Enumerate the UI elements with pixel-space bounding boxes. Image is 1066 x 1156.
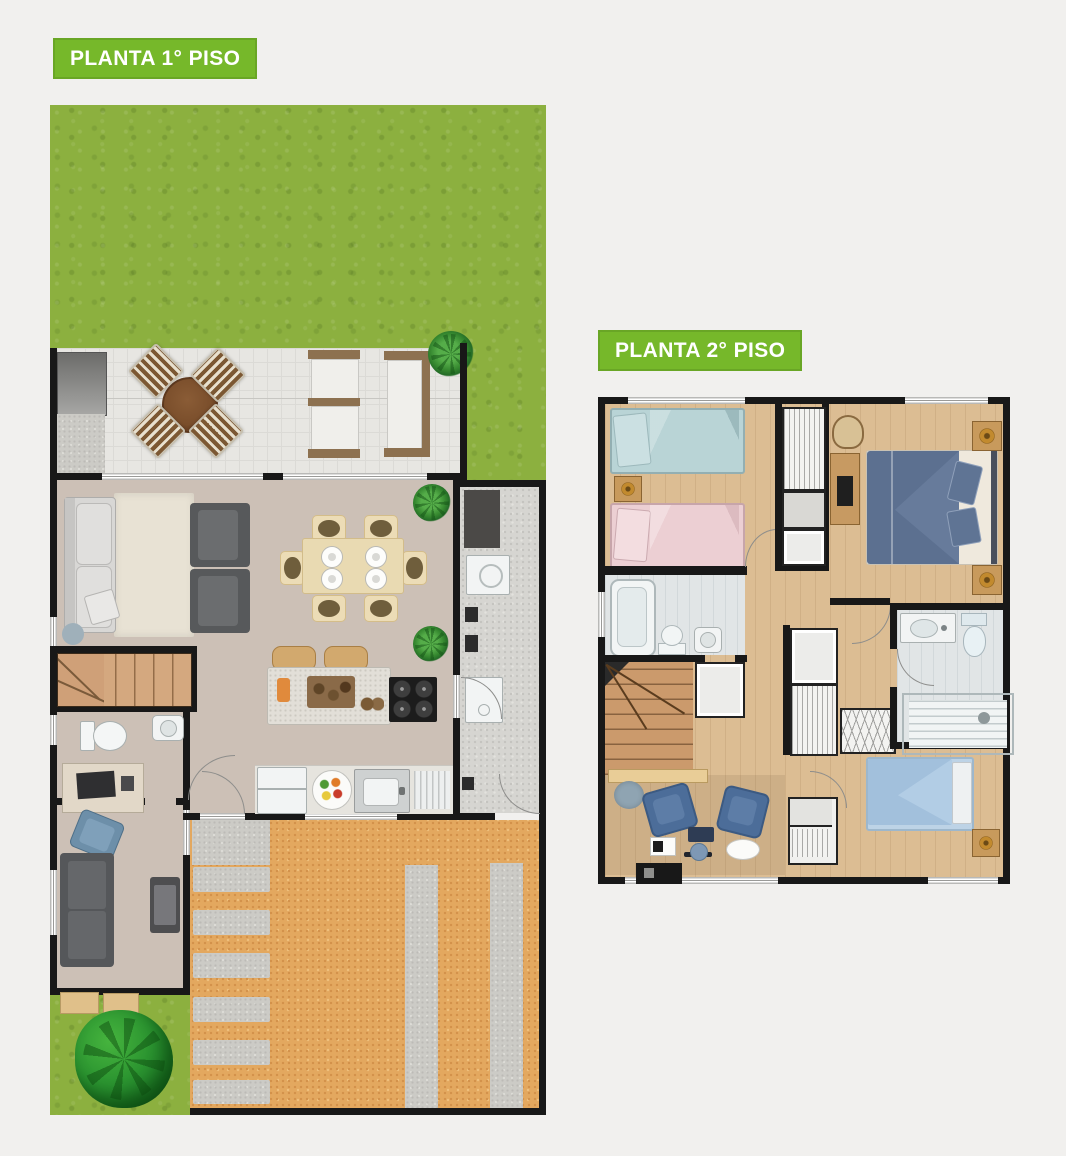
kitchen-window	[305, 813, 397, 820]
wall	[453, 718, 460, 820]
floor1-title-badge: PLANTA 1° PISO	[53, 38, 257, 79]
pillow	[946, 507, 982, 548]
wall	[190, 1108, 539, 1115]
entry-pad	[192, 820, 270, 865]
single-bed-teal	[610, 408, 745, 474]
wall	[783, 625, 790, 755]
desk	[62, 763, 144, 813]
wardrobe	[790, 684, 838, 756]
wardrobe	[840, 708, 896, 754]
pillow	[613, 508, 651, 563]
floor1-plan	[50, 105, 546, 1115]
wall	[735, 655, 747, 662]
shower-drain	[978, 712, 990, 724]
wall	[775, 404, 782, 571]
wall	[427, 473, 460, 480]
dining-table	[302, 538, 404, 594]
single-bed-pink	[610, 503, 745, 569]
stepping-stone	[193, 1080, 270, 1104]
side-grass	[467, 343, 546, 480]
oval-table	[726, 839, 760, 860]
terrace-plant	[428, 331, 474, 377]
wardrobe	[782, 407, 826, 491]
door-opening	[453, 675, 460, 718]
garden-step	[60, 992, 99, 1014]
gravel-strip	[57, 414, 105, 480]
wall	[183, 813, 200, 820]
floor1-title-label: PLANTA 1° PISO	[70, 47, 240, 70]
staircase	[57, 653, 192, 707]
closet-shelf	[790, 628, 838, 685]
bathroom-sink	[152, 715, 184, 741]
stepping-stone	[193, 953, 270, 978]
backyard-grass	[50, 105, 546, 348]
indoor-plant	[413, 484, 451, 522]
stepping-stone	[193, 867, 270, 892]
pillow	[952, 762, 972, 824]
wall	[830, 598, 890, 605]
cutting-board	[307, 676, 355, 708]
sliding-door	[283, 473, 427, 480]
vanity-sink	[900, 613, 956, 643]
outdoor-sofa	[308, 350, 360, 458]
wall	[50, 935, 57, 995]
wall	[598, 397, 605, 884]
window	[905, 397, 988, 404]
window	[50, 715, 57, 745]
round-stool	[684, 843, 712, 865]
wall	[460, 480, 546, 487]
kitchen-island	[267, 667, 391, 725]
window	[928, 877, 998, 884]
garden-bush	[75, 1010, 173, 1108]
fruit-bowl	[312, 770, 352, 810]
wall	[263, 473, 283, 480]
desk-chair	[832, 415, 864, 449]
nightstand	[972, 829, 1000, 857]
wall	[453, 480, 460, 675]
window	[628, 397, 745, 404]
laptop	[837, 476, 853, 506]
wall	[1003, 397, 1010, 884]
wall	[397, 813, 453, 820]
sliding-door	[102, 473, 263, 480]
staircase	[605, 662, 693, 775]
shower	[902, 693, 1014, 755]
pillow	[612, 412, 651, 467]
single-bed-blue	[866, 757, 974, 831]
wall	[605, 655, 705, 662]
driveway-track	[405, 865, 438, 1108]
kitchen-sink	[354, 769, 410, 813]
washing-machine	[466, 555, 510, 595]
hall-closet	[695, 662, 745, 718]
toilet	[960, 613, 987, 657]
entry-door-opening	[200, 813, 245, 820]
media-console	[650, 837, 676, 856]
doormat	[464, 490, 500, 548]
study-sofa	[60, 853, 114, 967]
headboard	[991, 451, 997, 564]
wall	[605, 566, 747, 575]
floor2-title-label: PLANTA 2° PISO	[615, 339, 785, 362]
floor-plans-canvas: PLANTA 1° PISO	[0, 0, 1066, 1156]
nightstand	[972, 565, 1002, 595]
wall	[50, 646, 197, 653]
wall	[890, 603, 897, 649]
toilet	[658, 625, 684, 653]
wall	[245, 813, 305, 820]
dish-rack	[414, 771, 450, 809]
coffee-table	[150, 877, 180, 933]
floor2-title-badge: PLANTA 2° PISO	[598, 330, 802, 371]
wall	[539, 480, 546, 1115]
nightstand	[614, 476, 642, 502]
utility-box	[465, 607, 478, 622]
faucet	[399, 787, 405, 795]
sofa	[64, 497, 116, 633]
refrigerator	[257, 767, 307, 814]
outdoor-lounge	[384, 351, 430, 457]
nightstand	[972, 421, 1002, 451]
wall	[460, 343, 467, 480]
dining-chair	[402, 551, 427, 585]
wall	[890, 603, 1010, 610]
floor2-plan	[598, 397, 1010, 884]
wall	[183, 855, 190, 988]
floor-pouf	[62, 623, 84, 645]
utility-box	[465, 635, 478, 652]
wall	[50, 348, 57, 617]
wall	[50, 745, 57, 870]
bathtub	[610, 579, 656, 657]
living-rug	[114, 493, 194, 637]
round-rug	[614, 781, 644, 809]
window	[598, 592, 605, 637]
bathroom-sink	[694, 627, 722, 653]
stepping-stone	[193, 910, 270, 935]
indoor-plant	[413, 626, 449, 662]
wall	[890, 687, 897, 749]
stepping-stone	[193, 997, 270, 1022]
armchair	[190, 503, 250, 567]
window	[50, 617, 57, 647]
utility-box	[462, 777, 474, 790]
wall	[453, 813, 495, 820]
armchair	[190, 569, 250, 633]
dining-chair	[312, 595, 346, 622]
wall	[50, 473, 102, 480]
dining-chair	[364, 595, 398, 622]
desk	[830, 453, 860, 525]
window	[50, 870, 57, 935]
stepping-stone	[193, 1040, 270, 1065]
driveway-track	[490, 863, 523, 1108]
toilet	[80, 719, 126, 751]
cooktop	[389, 677, 437, 722]
wall-stub	[636, 863, 682, 884]
closet-shelf	[782, 491, 826, 529]
master-bed	[866, 450, 998, 565]
terrace-ramp	[57, 352, 107, 416]
monitor	[76, 771, 116, 800]
closet-shelf	[782, 529, 826, 566]
side-table	[688, 827, 714, 842]
